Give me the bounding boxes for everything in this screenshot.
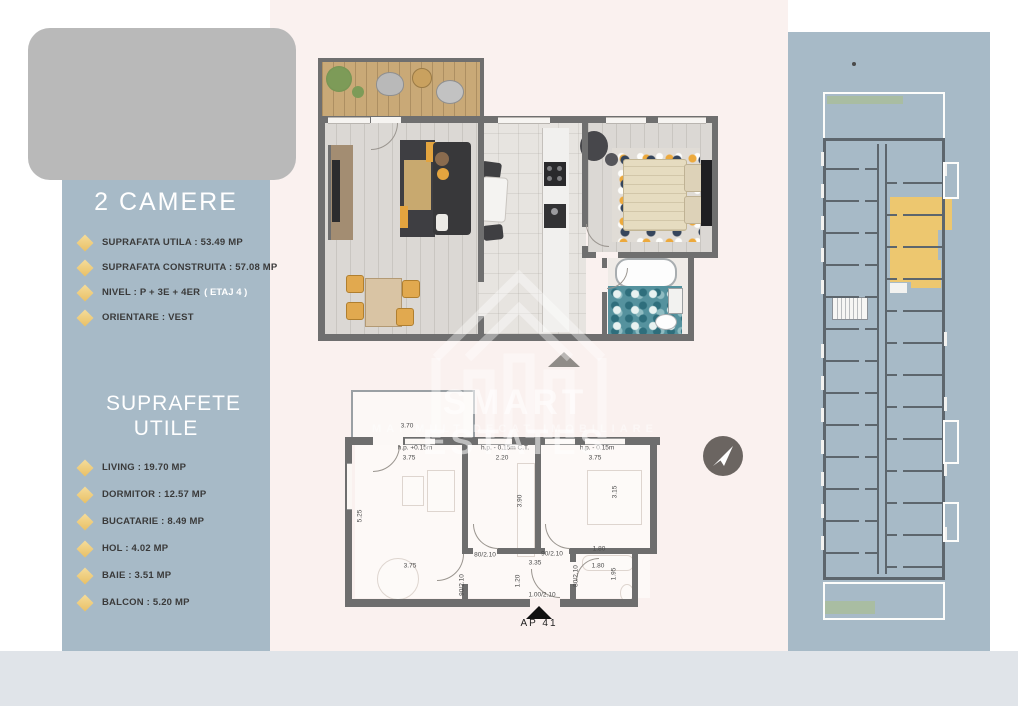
building-wall: [903, 374, 943, 376]
building-wall: [823, 392, 859, 394]
surface-row: LIVING : 19.70 MP: [62, 454, 270, 481]
dimension-label: 3.15: [612, 486, 619, 499]
side-balcony-outline: [943, 420, 959, 464]
window-slit: [821, 408, 824, 422]
dimension-label: 3.75: [403, 455, 416, 462]
building-wall: [823, 552, 859, 554]
wall: [560, 599, 638, 607]
building-wall: [887, 534, 897, 536]
building-wall: [903, 246, 943, 248]
ottoman: [605, 153, 618, 166]
dimension-label: 3.75: [404, 563, 417, 570]
building-wall: [885, 144, 887, 574]
spec-row: SUPRAFATA UTILA : 53.49 MP: [62, 230, 270, 255]
building-wall: [903, 566, 943, 568]
building-wall: [887, 182, 897, 184]
building-wall: [865, 200, 877, 202]
dimension-label: 1.80: [593, 546, 606, 553]
building-wall: [823, 520, 859, 522]
building-wall: [823, 456, 859, 458]
window-slit: [821, 440, 824, 454]
window-slit: [821, 280, 824, 294]
building-wall: [903, 406, 943, 408]
building-wall: [887, 278, 897, 280]
surfaces-title: SUPRAFETE UTILE: [106, 391, 226, 441]
building-wall: [903, 438, 943, 440]
counter-outline: [517, 463, 535, 557]
window-slit: [821, 376, 824, 390]
building-wall: [903, 310, 943, 312]
surface-row: BALCON : 5.20 MP: [62, 589, 270, 616]
stair-step: [845, 298, 846, 319]
plant-icon: [326, 66, 352, 92]
building-wall: [865, 488, 877, 490]
diamond-bullet-icon: [77, 513, 94, 530]
surfaces-list: LIVING : 19.70 MPDORMITOR : 12.57 MPBUCA…: [62, 454, 270, 616]
marker-dot: [852, 62, 856, 66]
building-wall: [903, 534, 943, 536]
window-slit: [821, 248, 824, 262]
building-wall: [903, 342, 943, 344]
building-wall: [865, 296, 877, 298]
wall: [478, 123, 484, 282]
stair-step: [837, 298, 838, 319]
balcony-chair: [436, 80, 464, 104]
building-wall: [823, 577, 945, 580]
stove-burner: [547, 176, 552, 181]
bed-duvet: [623, 159, 687, 231]
building-wall: [877, 144, 879, 574]
window-slit: [821, 536, 824, 550]
floorplan-3d: [318, 56, 744, 374]
wall: [569, 548, 657, 554]
wall: [602, 292, 607, 341]
dimension-label: 3.75: [589, 455, 602, 462]
bottom-strip: [0, 651, 1018, 706]
wall: [570, 554, 576, 562]
rug-accent: [400, 206, 408, 228]
diamond-bullet-icon: [77, 259, 94, 276]
building-wall: [823, 328, 859, 330]
info-sidebar: 2 CAMERE SUPRAFATA UTILA : 53.49 MPSUPRA…: [62, 178, 270, 651]
building-wall: [887, 406, 897, 408]
building-wall: [887, 470, 897, 472]
building-wall: [823, 232, 859, 234]
dimension-label: 3.70: [401, 423, 414, 430]
spec-note: ( ETAJ 4 ): [204, 287, 247, 298]
tv-screen: [332, 160, 340, 222]
dimension-label: 1.95: [611, 568, 618, 581]
stair-step: [861, 298, 862, 319]
faucet: [551, 208, 558, 215]
wall: [688, 252, 694, 341]
side-balcony-outline: [943, 502, 959, 542]
diamond-bullet-icon: [77, 594, 94, 611]
building-wall: [887, 374, 897, 376]
building-wall: [823, 424, 859, 426]
wall: [535, 437, 541, 548]
sofa-outline: [402, 476, 424, 506]
window-slit: [821, 472, 824, 486]
building-wall: [887, 310, 897, 312]
building-wall: [887, 438, 897, 440]
building-wall: [865, 328, 877, 330]
apartment-number-label: AP 41: [520, 618, 557, 629]
sofa-pillow: [436, 214, 448, 231]
spec-text: SUPRAFATA CONSTRUITA : 57.08 MP: [102, 262, 277, 273]
logo-placeholder: [28, 28, 296, 180]
stair-step: [853, 298, 854, 319]
building-wall: [903, 214, 943, 216]
spec-row: ORIENTARE : VEST: [62, 305, 270, 330]
dimension-label: h.p. +0.15m: [398, 445, 433, 452]
building-wall: [865, 168, 877, 170]
balcony-outline: [351, 390, 475, 440]
wall: [345, 599, 530, 607]
diamond-bullet-icon: [77, 234, 94, 251]
window-slit: [944, 332, 947, 346]
living-rug-center: [404, 160, 431, 210]
dining-chair: [346, 275, 364, 293]
apartment-type-title: 2 CAMERE: [62, 188, 270, 217]
window: [498, 117, 550, 124]
dining-chair: [346, 302, 364, 320]
dimension-label: 3.35: [529, 560, 542, 567]
wall: [462, 437, 468, 554]
spec-text: NIVEL : P + 3E + 4ER: [102, 287, 200, 298]
building-wall: [823, 264, 859, 266]
compass-icon: [703, 436, 743, 476]
building-wall: [823, 296, 859, 298]
surface-text: HOL : 4.02 MP: [102, 543, 168, 554]
wall: [318, 58, 322, 122]
spec-text: SUPRAFATA UTILA : 53.49 MP: [102, 237, 243, 248]
diamond-bullet-icon: [77, 309, 94, 326]
plant-icon: [352, 86, 364, 98]
wall: [318, 116, 325, 341]
diamond-bullet-icon: [77, 540, 94, 557]
spec-row: NIVEL : P + 3E + 4ER( ETAJ 4 ): [62, 280, 270, 305]
spec-text: ORIENTARE : VEST: [102, 312, 194, 323]
building-wall: [887, 566, 897, 568]
building-wall: [865, 424, 877, 426]
building-wall: [865, 456, 877, 458]
dimension-label: 80/2.10: [573, 565, 580, 587]
sofa-cushion: [435, 152, 449, 166]
window-slit: [821, 504, 824, 518]
building-wall: [903, 278, 943, 280]
stair-step: [841, 298, 842, 319]
spec-row: SUPRAFATA CONSTRUITA : 57.08 MP: [62, 255, 270, 280]
surface-text: BAIE : 3.51 MP: [102, 570, 171, 581]
headboard: [701, 160, 712, 226]
wall: [582, 123, 588, 227]
bath-vanity: [668, 288, 683, 314]
building-wall: [823, 360, 859, 362]
balcony-table: [412, 68, 432, 88]
dimension-label: 1.00/2.10: [528, 592, 555, 599]
surface-row: BUCATARIE : 8.49 MP: [62, 508, 270, 535]
building-wall: [903, 502, 943, 504]
stove-burner: [547, 166, 552, 171]
wall: [478, 316, 484, 334]
window: [347, 463, 352, 510]
building-wall: [865, 360, 877, 362]
building-wall: [823, 488, 859, 490]
building-wall: [865, 552, 877, 554]
dimension-label: 90/2.10: [541, 551, 563, 558]
diamond-bullet-icon: [77, 486, 94, 503]
dimension-label: 80/2.10: [474, 552, 496, 559]
building-wall: [887, 342, 897, 344]
surface-row: HOL : 4.02 MP: [62, 535, 270, 562]
diamond-bullet-icon: [77, 284, 94, 301]
wall: [632, 554, 638, 607]
window-slit: [821, 184, 824, 198]
side-balcony-outline: [943, 162, 959, 199]
building-wall: [823, 138, 945, 141]
spec-list: SUPRAFATA UTILA : 53.49 MPSUPRAFATA CONS…: [62, 230, 270, 330]
highlighted-apartment: [911, 260, 941, 288]
window-slit: [944, 397, 947, 411]
sofa-cushion: [437, 168, 449, 180]
brochure-page: 2 CAMERE SUPRAFATA UTILA : 53.49 MPSUPRA…: [0, 0, 1018, 720]
building-wall: [865, 520, 877, 522]
wall: [318, 334, 694, 341]
window-slit: [821, 216, 824, 230]
diamond-bullet-icon: [77, 567, 94, 584]
window: [658, 117, 706, 124]
diamond-bullet-icon: [77, 459, 94, 476]
stair-step: [849, 298, 850, 319]
surface-row: BAIE : 3.51 MP: [62, 562, 270, 589]
entrance-arrow-icon: [548, 352, 580, 367]
surface-text: BALCON : 5.20 MP: [102, 597, 190, 608]
staircase: [832, 297, 868, 320]
surface-text: LIVING : 19.70 MP: [102, 462, 186, 473]
building-wall: [887, 214, 897, 216]
kitchen-chair: [482, 224, 503, 241]
dining-chair: [396, 308, 414, 326]
window: [606, 117, 646, 124]
wall: [712, 116, 718, 258]
dimension-label: 90/2.10: [459, 574, 466, 596]
building-wall: [865, 392, 877, 394]
wall: [586, 252, 596, 258]
dimension-label: 3.90: [517, 495, 524, 508]
surface-text: BUCATARIE : 8.49 MP: [102, 516, 204, 527]
window-slit: [821, 344, 824, 358]
kitchen-counter: [542, 128, 569, 332]
building-wall: [865, 264, 877, 266]
building-wall: [903, 182, 943, 184]
wall: [650, 437, 657, 554]
wall: [480, 58, 484, 122]
stove-burner: [557, 166, 562, 171]
highlighted-apartment: [890, 230, 938, 260]
balcony-chair: [376, 72, 404, 96]
table-outline: [427, 470, 455, 512]
surface-text: DORMITOR : 12.57 MP: [102, 489, 206, 500]
window: [545, 438, 575, 445]
dimension-label: h.p. - 0.15m: [580, 445, 615, 452]
green-strip: [825, 601, 875, 614]
building-wall: [887, 246, 897, 248]
toilet: [655, 314, 677, 330]
building-wall: [887, 502, 897, 504]
building-plan-panel: [788, 32, 990, 651]
dimension-label: 1.20: [515, 575, 522, 588]
bathroom-cell: [890, 283, 907, 293]
surface-row: DORMITOR : 12.57 MP: [62, 481, 270, 508]
floorplan-2d: AP 41 3.70h.p. +0.15m3.75h.p. - 0.15m C.…: [345, 388, 665, 638]
dimension-label: 5.25: [357, 510, 364, 523]
dining-chair: [402, 280, 420, 298]
building-wall: [823, 168, 859, 170]
stove-burner: [557, 176, 562, 181]
building-wall: [865, 232, 877, 234]
building-wall: [903, 470, 943, 472]
wall: [602, 258, 607, 268]
window-slit: [821, 152, 824, 166]
wall: [497, 548, 545, 554]
green-strip: [827, 96, 903, 104]
dimension-label: h.p. - 0.15m C.T.: [481, 445, 529, 452]
window-slit: [944, 462, 947, 476]
dimension-label: 2.20: [496, 455, 509, 462]
building-wall: [823, 200, 859, 202]
wall: [318, 58, 484, 62]
window: [328, 117, 370, 124]
dimension-label: 1.80: [592, 563, 605, 570]
stair-step: [857, 298, 858, 319]
